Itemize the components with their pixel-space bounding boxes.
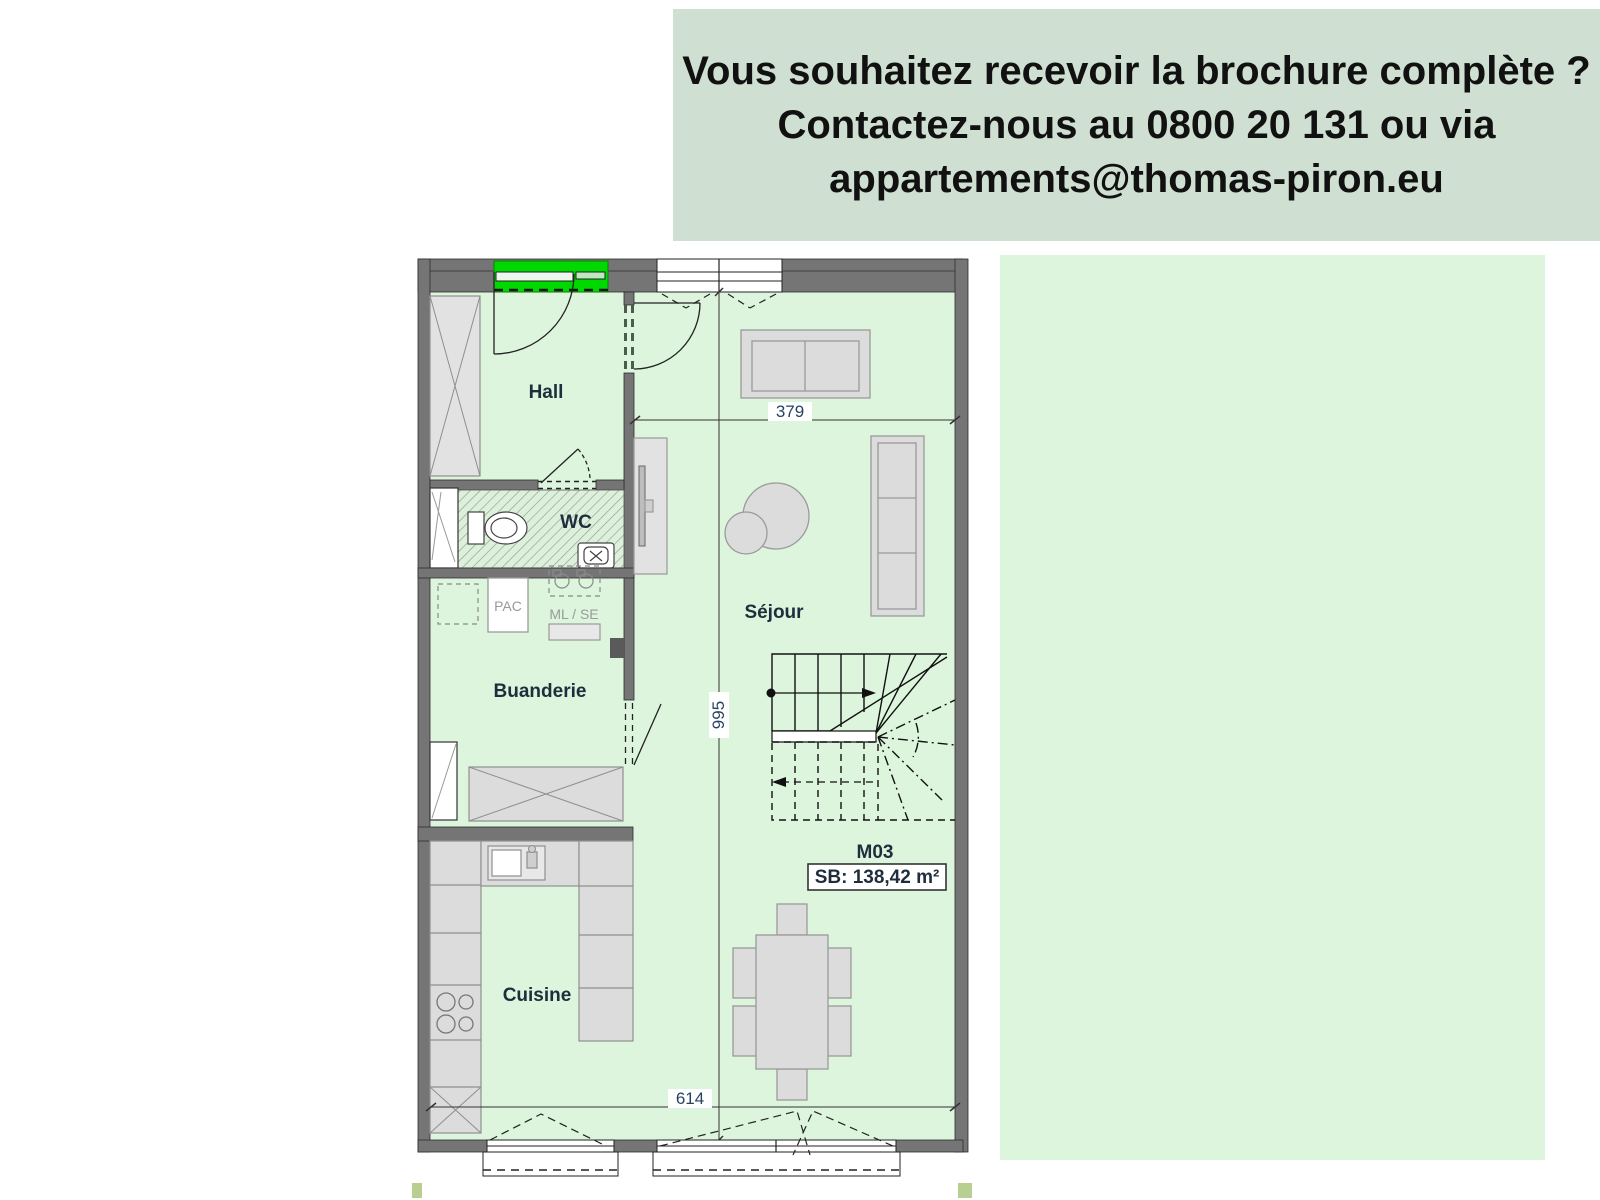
svg-text:614: 614 [676,1089,704,1108]
svg-text:Séjour: Séjour [744,602,804,623]
svg-text:PAC: PAC [494,598,522,614]
svg-text:379: 379 [776,402,804,421]
svg-text:Buanderie: Buanderie [494,681,587,702]
svg-text:995: 995 [709,701,728,729]
svg-text:Hall: Hall [529,382,564,403]
svg-text:ML / SE: ML / SE [549,606,598,622]
svg-text:M03: M03 [857,842,894,863]
svg-text:WC: WC [560,512,592,533]
svg-text:SB: 138,42 m²: SB: 138,42 m² [815,867,940,888]
svg-text:Cuisine: Cuisine [503,985,572,1006]
